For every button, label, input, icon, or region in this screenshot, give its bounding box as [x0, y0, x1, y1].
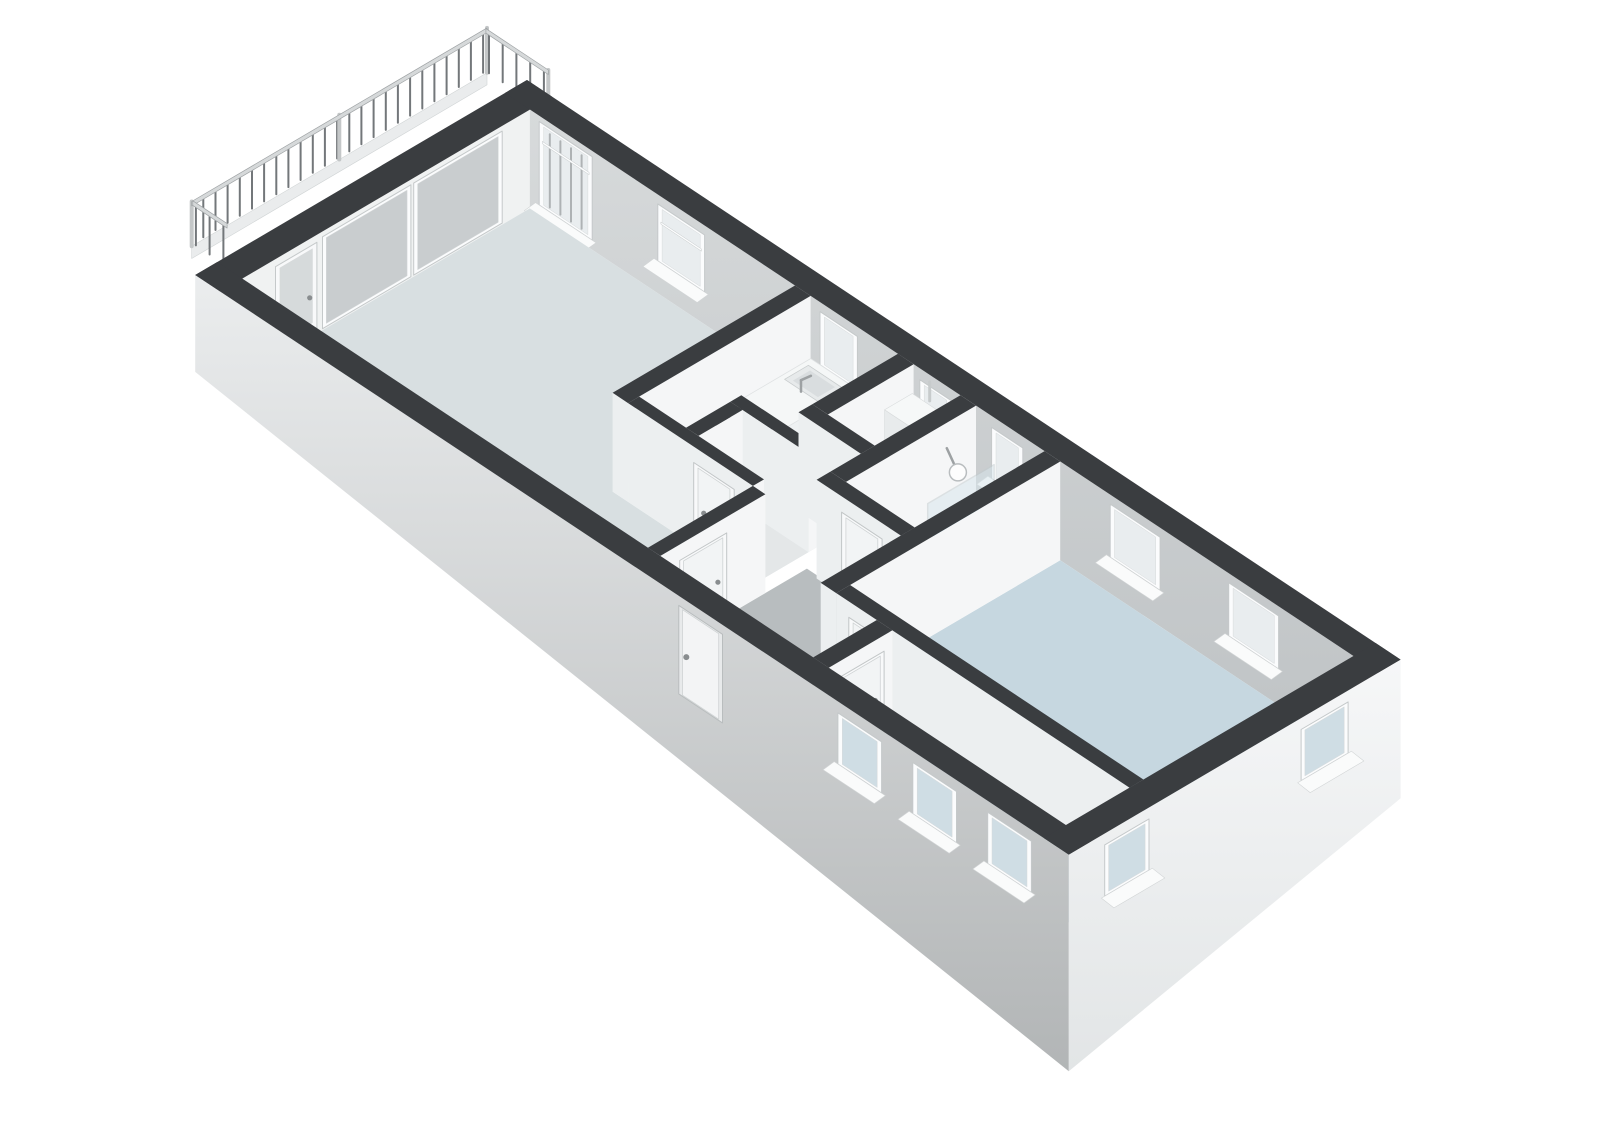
front-door-handle — [683, 654, 689, 660]
floorplan-svg — [0, 0, 1600, 1131]
kitchen-partition-south-face — [613, 393, 629, 502]
floorplan-3d-view — [0, 0, 1600, 1131]
hallway-west-wall-door-handle — [715, 580, 720, 585]
shower-head — [949, 464, 966, 481]
balcony-door-handle — [307, 295, 312, 300]
